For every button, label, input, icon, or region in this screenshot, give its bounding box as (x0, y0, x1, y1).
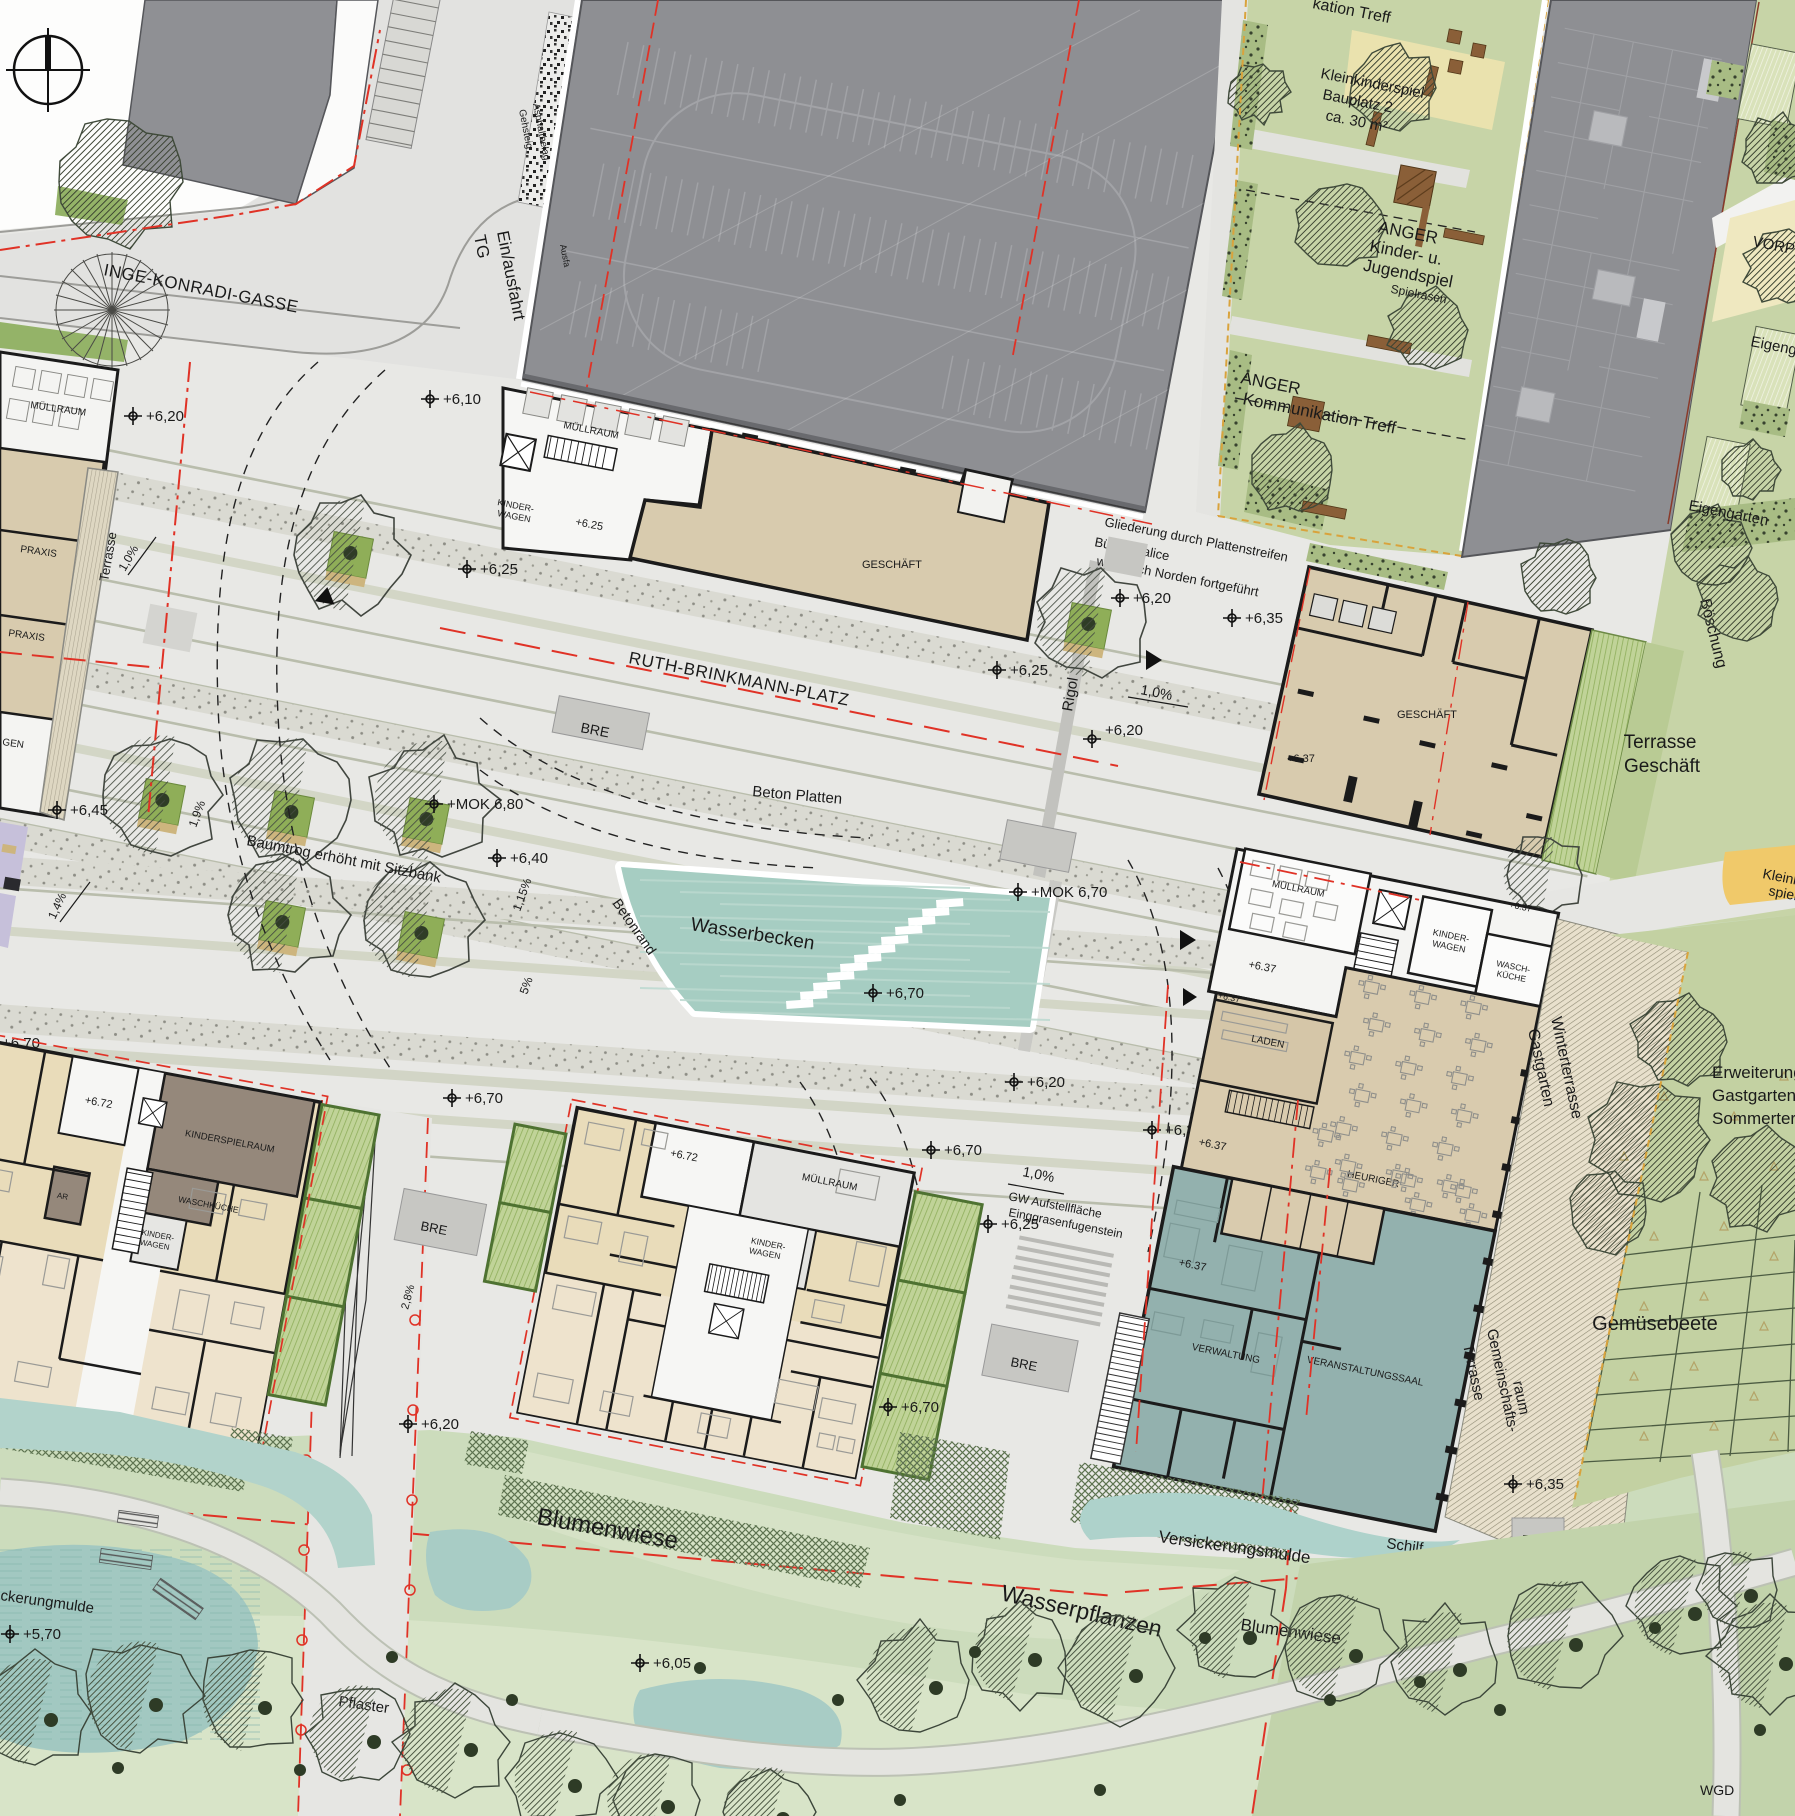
svg-text:+6,20: +6,20 (1105, 722, 1143, 739)
svg-text:Erweiterung: Erweiterung (1712, 1063, 1795, 1082)
svg-text:GESCHÄFT: GESCHÄFT (1397, 709, 1457, 721)
svg-text:+6,70: +6,70 (944, 1142, 982, 1159)
svg-text:Gastgarten: Gastgarten (1712, 1086, 1795, 1105)
svg-text:+6,20: +6,20 (1133, 590, 1171, 607)
svg-text:+6,45: +6,45 (70, 802, 108, 819)
svg-text:+MOK 6,80: +MOK 6,80 (447, 796, 523, 813)
svg-text:+6,40: +6,40 (510, 850, 548, 867)
svg-text:+5,70: +5,70 (23, 1626, 61, 1643)
svg-text:GESCHÄFT: GESCHÄFT (862, 559, 922, 571)
svg-text:WGD: WGD (1700, 1782, 1734, 1798)
svg-text:+6,25: +6,25 (480, 561, 518, 578)
svg-text:+6,35: +6,35 (1526, 1476, 1564, 1493)
svg-text:Sommerterr: Sommerterr (1712, 1109, 1795, 1128)
svg-text:+6,10: +6,10 (443, 391, 481, 408)
svg-text:+6,20: +6,20 (146, 408, 184, 425)
svg-text:+6,70: +6,70 (886, 985, 924, 1002)
svg-text:Geschäft: Geschäft (1624, 756, 1701, 777)
svg-text:+6,05: +6,05 (653, 1655, 691, 1672)
svg-text:+6,70: +6,70 (465, 1090, 503, 1107)
svg-text:+6,35: +6,35 (1245, 610, 1283, 627)
svg-text:+6,20: +6,20 (1027, 1074, 1065, 1091)
svg-text:Terrasse: Terrasse (1624, 732, 1697, 753)
svg-text:+6,25: +6,25 (1010, 662, 1048, 679)
svg-text:Gemüsebeete: Gemüsebeete (1592, 1313, 1718, 1335)
svg-text:+6.37: +6.37 (1287, 753, 1315, 765)
svg-text:+6,20: +6,20 (421, 1416, 459, 1433)
svg-text:+MOK 6,70: +MOK 6,70 (1031, 884, 1107, 901)
svg-text:+6,70: +6,70 (901, 1399, 939, 1416)
